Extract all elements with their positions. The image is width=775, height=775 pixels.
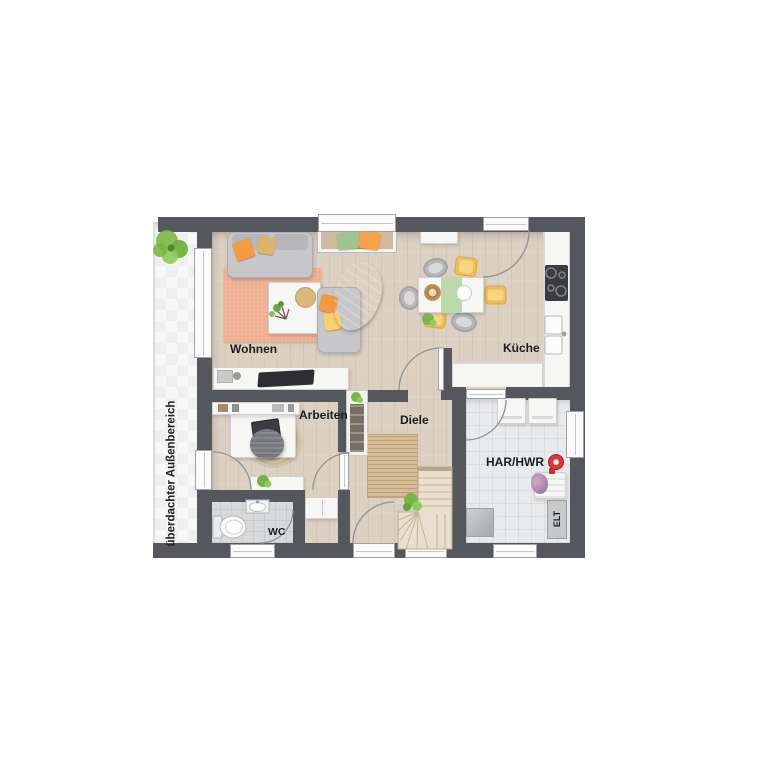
room-label-har-hwr: HAR/HWR [486, 455, 544, 469]
washing-machine [497, 398, 526, 424]
storage-box [466, 508, 494, 537]
floorplan-canvas: Wohnen Küche Arbeiten Diele WC HAR/HWR E… [0, 0, 775, 775]
orange-cushion [358, 230, 381, 251]
window [566, 411, 584, 458]
shelf-item [288, 404, 294, 412]
exterior-wall-right [570, 217, 585, 558]
dining-chair-yellow [454, 256, 478, 278]
shelf-item [218, 404, 228, 412]
appliance-detail [501, 416, 522, 419]
window [318, 214, 396, 232]
lowboard-item [233, 372, 241, 380]
room-label-wc: WC [268, 526, 286, 538]
interior-wall [338, 490, 350, 543]
hallway-rug [367, 434, 418, 498]
interior-wall [200, 490, 305, 502]
window [194, 248, 212, 358]
window [405, 544, 447, 558]
interior-wall [293, 502, 305, 543]
room-label-aussenbereich: überdachter Außenbereich [166, 399, 179, 549]
terrace-door [483, 217, 529, 231]
room-label-kueche: Küche [503, 341, 540, 355]
office-chair [250, 429, 284, 459]
television [257, 369, 314, 387]
terrace-door [195, 450, 212, 490]
interior-door [466, 389, 506, 399]
interior-wall [200, 390, 408, 402]
round-tray [295, 287, 316, 308]
table-centerpiece [424, 284, 441, 301]
kitchen-counter [543, 231, 570, 388]
shelf-item [232, 404, 239, 412]
room-label-diele: Diele [400, 413, 429, 427]
kitchen-sideboard [420, 231, 458, 244]
shelf-item [272, 404, 284, 412]
hallway-shelf-contents [350, 404, 364, 452]
window [230, 544, 275, 558]
dryer [528, 398, 557, 424]
dining-chair-yellow [485, 286, 507, 305]
window [493, 544, 537, 558]
cooktop [545, 265, 568, 301]
kitchen-peninsula-counter [452, 362, 543, 388]
interior-wall [452, 387, 466, 400]
table-dish [456, 285, 472, 301]
interior-door [339, 452, 349, 490]
room-label-elt: ELT [551, 507, 563, 531]
room-label-arbeiten: Arbeiten [299, 408, 348, 422]
lowboard-item [217, 370, 233, 383]
interior-wall [452, 400, 466, 543]
sofa-back-cushion [272, 234, 308, 250]
room-label-wohnen: Wohnen [230, 342, 277, 356]
appliance-detail [532, 416, 553, 419]
interior-wall-stub [441, 348, 452, 400]
wardrobe-cabinet [305, 497, 338, 519]
tan-pillow [257, 236, 276, 255]
entrance-door [353, 543, 395, 558]
